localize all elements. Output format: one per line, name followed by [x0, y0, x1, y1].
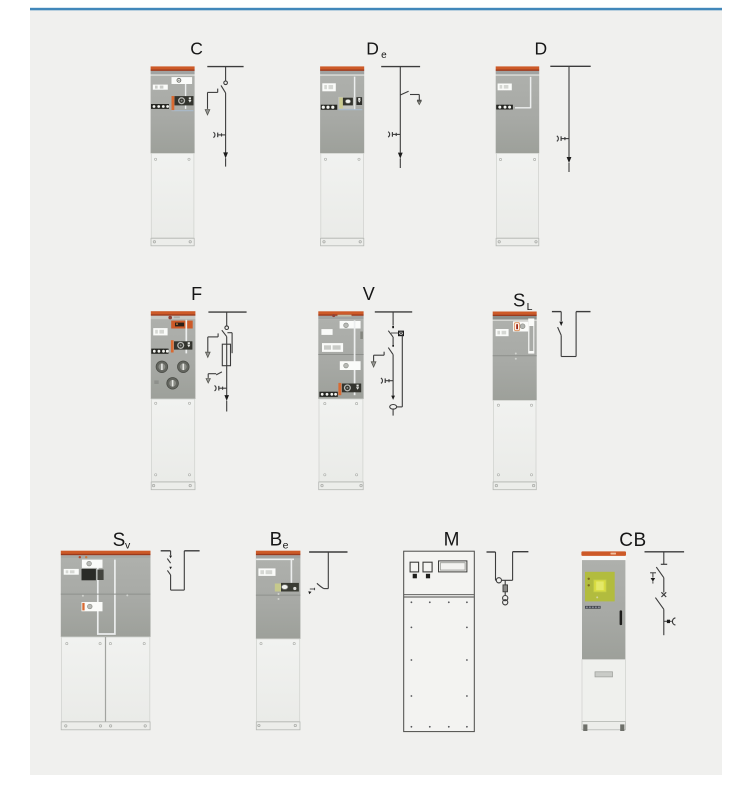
svg-text:D: D — [534, 39, 547, 59]
svg-text:V: V — [363, 284, 375, 304]
svg-text:D: D — [366, 39, 379, 59]
svg-text:v: v — [125, 539, 131, 551]
svg-text:M: M — [444, 529, 460, 550]
svg-text:e: e — [283, 539, 289, 551]
svg-text:S: S — [513, 290, 525, 311]
svg-text:CB: CB — [619, 530, 646, 551]
svg-text:L: L — [527, 301, 533, 313]
svg-text:S: S — [113, 530, 126, 551]
svg-text:B: B — [270, 529, 283, 550]
svg-text:C: C — [190, 39, 203, 59]
svg-text:e: e — [381, 50, 387, 61]
svg-text:F: F — [191, 284, 202, 304]
